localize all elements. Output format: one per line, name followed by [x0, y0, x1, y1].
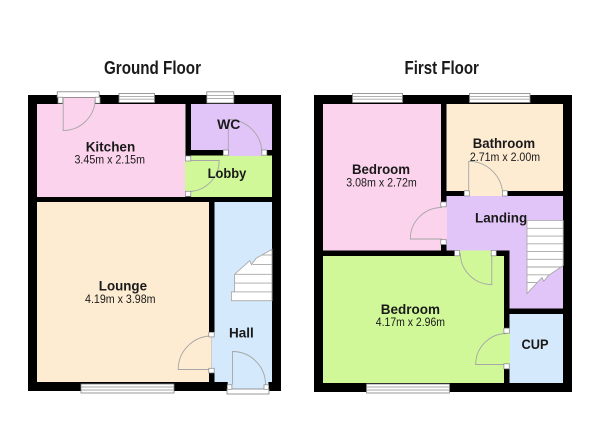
svg-text:CUP: CUP: [522, 337, 549, 352]
svg-text:Hall: Hall: [229, 326, 254, 341]
svg-text:WC: WC: [217, 117, 240, 132]
svg-text:Kitchen: Kitchen: [86, 140, 136, 155]
svg-text:Bedroom: Bedroom: [381, 302, 440, 317]
svg-text:4.17m x 2.96m: 4.17m x 2.96m: [376, 317, 445, 329]
svg-text:2.71m x 2.00m: 2.71m x 2.00m: [470, 152, 540, 164]
svg-text:Bedroom: Bedroom: [352, 162, 410, 177]
svg-text:3.45m x 2.15m: 3.45m x 2.15m: [75, 154, 146, 166]
svg-text:First Floor: First Floor: [405, 58, 479, 78]
svg-text:Lounge: Lounge: [99, 279, 148, 294]
svg-text:Landing: Landing: [475, 211, 527, 226]
svg-text:Lobby: Lobby: [208, 166, 247, 181]
svg-text:Ground Floor: Ground Floor: [104, 58, 201, 78]
svg-text:Bathroom: Bathroom: [473, 136, 535, 151]
svg-text:3.08m x 2.72m: 3.08m x 2.72m: [346, 177, 417, 189]
svg-text:4.19m x 3.98m: 4.19m x 3.98m: [85, 294, 156, 306]
